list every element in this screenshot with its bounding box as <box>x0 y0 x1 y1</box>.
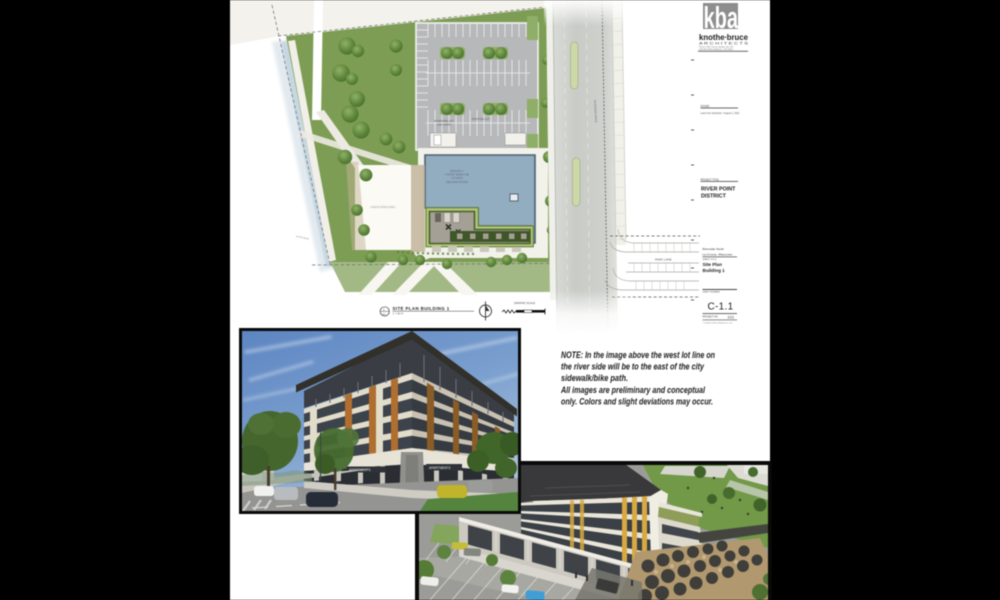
svg-text:NOTE: In the image above the w: NOTE: In the image above the west lot li… <box>561 350 715 360</box>
svg-text:A R C H I T E C T S: A R C H I T E C T S <box>699 42 749 46</box>
svg-text:EXISTING LOT: EXISTING LOT <box>472 117 490 121</box>
svg-text:(SEE ARCH PLANS): (SEE ARCH PLANS) <box>446 181 468 184</box>
svg-text:All images are preliminary and: All images are preliminary and conceptua… <box>560 385 705 395</box>
svg-text:(150 CARS): (150 CARS) <box>437 122 451 126</box>
svg-text:Land Use Submittal - August 2,: Land Use Submittal - August 2, 2021 <box>701 112 741 115</box>
svg-text:Site Plan: Site Plan <box>703 262 723 267</box>
svg-text:RIVERSIDE LOT: RIVERSIDE LOT <box>434 119 454 123</box>
svg-text:LANDSCAPED AREA: LANDSCAPED AREA <box>370 205 395 209</box>
svg-text:© Knothe & Bruce Architects, L: © Knothe & Bruce Architects, LLC <box>703 322 734 325</box>
svg-text:PROJECT TITLE: PROJECT TITLE <box>701 178 720 181</box>
svg-text:PROJECT NO.: PROJECT NO. <box>703 316 719 319</box>
svg-text:PARK LANE: PARK LANE <box>655 258 672 262</box>
svg-text:the river side will be to the: the river side will be to the east of th… <box>561 362 705 372</box>
svg-text:kba: kba <box>704 0 739 35</box>
svg-text:ISSUED: ISSUED <box>701 105 710 108</box>
svg-text:sidewalk/bike path.: sidewalk/bike path. <box>561 373 628 383</box>
svg-text:GRAPHIC SCALE: GRAPHIC SCALE <box>514 301 535 305</box>
svg-text:2/21: 2/21 <box>728 316 735 320</box>
svg-text:1" = 30'-0": 1" = 30'-0" <box>393 313 404 316</box>
svg-text:SHEET NUMBER: SHEET NUMBER <box>703 292 721 294</box>
svg-text:175 UNITS: 175 UNITS <box>451 177 463 180</box>
svg-text:Building 1: Building 1 <box>703 268 726 273</box>
svg-text:C-1.1: C-1.1 <box>708 302 734 313</box>
svg-text:608.836.3690 Middleton, WI 5: 608.836.3690 Middleton, WI 53562 <box>699 48 734 51</box>
svg-text:knothe∙bruce: knothe∙bruce <box>699 32 748 42</box>
svg-text:SITE PLAN BUILDING 1: SITE PLAN BUILDING 1 <box>393 306 450 311</box>
svg-text:BUILDING 1: BUILDING 1 <box>450 170 464 173</box>
svg-text:SHEET TITLE: SHEET TITLE <box>703 259 717 261</box>
svg-text:only. Colors and slight deviat: only. Colors and slight deviations may o… <box>561 396 713 406</box>
svg-text:RIVER POINT: RIVER POINT <box>701 187 736 193</box>
svg-text:APARTMENTS: APARTMENTS <box>429 466 451 470</box>
svg-text:DISTRICT: DISTRICT <box>701 194 727 200</box>
svg-text:La Crosse, Wisconsin: La Crosse, Wisconsin <box>703 253 733 257</box>
svg-text:6 STORY MIXED-USE: 6 STORY MIXED-USE <box>445 174 469 177</box>
svg-text:Riverside North: Riverside North <box>703 247 725 251</box>
